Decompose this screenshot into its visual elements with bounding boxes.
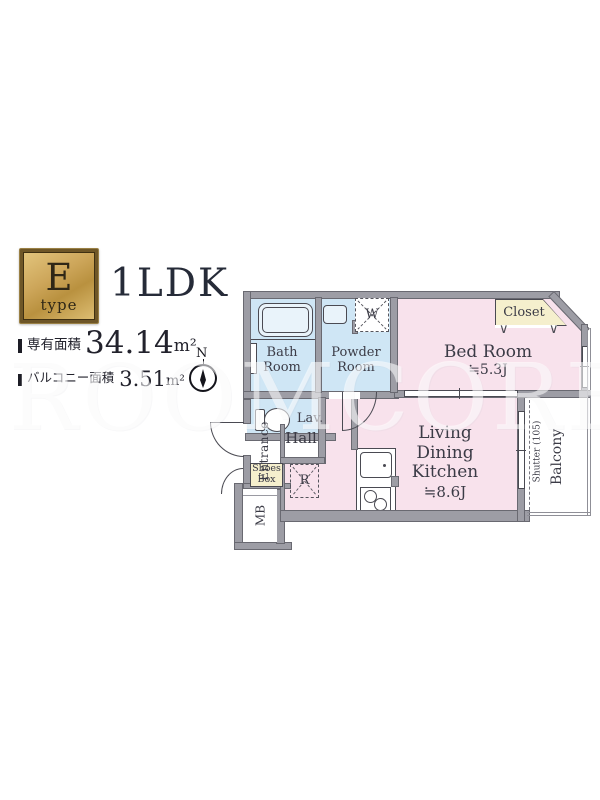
type-badge: E type <box>19 248 99 324</box>
bathtub-inner-line <box>262 307 309 333</box>
sink-icon <box>323 305 347 324</box>
bath-partition-line <box>251 339 315 340</box>
folding-door-mark-icon: ∨ <box>549 323 559 336</box>
balcony-area-row: バルコニー面積 3.51 m² <box>18 367 185 389</box>
entrance-door-arc <box>210 422 244 457</box>
kitchen-sink-icon <box>360 452 392 478</box>
window-tick <box>459 388 460 399</box>
tick-mark <box>18 374 22 386</box>
wall <box>280 457 325 464</box>
bedroom-size-label: ≒5.3J <box>394 362 582 378</box>
sink-drain-dot <box>383 464 386 467</box>
powder-room-label: Powder Room <box>319 346 393 376</box>
shoes-box-label: Shoes Box <box>250 464 283 486</box>
washer-label: W <box>355 307 389 322</box>
ldk-size-label: ≒8.6J <box>394 483 496 501</box>
floorplan-page: { "badge": {"letter": "E", "sub": "type"… <box>0 0 600 800</box>
exclusive-area-row: 専有面積 34.14 m² <box>18 328 197 356</box>
type-badge-panel: E type <box>23 252 95 320</box>
exclusive-area-unit: m² <box>174 338 197 356</box>
window-tick <box>516 450 526 451</box>
small-door-arc <box>221 468 243 494</box>
lavatory-label: Lav. <box>290 411 330 426</box>
tick-mark <box>18 339 22 353</box>
exclusive-area-label: 専有面積 <box>27 333 81 356</box>
bath-room-label: Bath Room <box>251 346 313 376</box>
compass-icon <box>189 364 217 392</box>
compass-north-label: N <box>196 346 207 361</box>
wall <box>243 291 560 299</box>
type-badge-letter: E <box>45 259 72 296</box>
balcony-edge-line <box>527 512 591 516</box>
shutter-label: Shutter (105) <box>533 417 544 487</box>
balcony-edge-line <box>587 328 591 516</box>
hall-label: Hall <box>282 429 320 447</box>
meter-box-label: MB <box>254 487 267 545</box>
folding-door-mark-icon: ∨ <box>499 323 509 336</box>
balcony-area-label: バルコニー面積 <box>27 367 114 389</box>
layout-type-title: 1LDK <box>110 264 229 303</box>
exclusive-area-value: 34.14 <box>85 330 174 356</box>
wall <box>280 510 530 522</box>
ldk-label: Living Dining Kitchen <box>410 424 480 483</box>
bedroom-label: Bed Room <box>394 342 582 362</box>
wall <box>315 297 322 393</box>
wall <box>243 291 251 399</box>
sliding-window <box>404 390 518 397</box>
stove-icon <box>360 487 391 512</box>
balcony-label: Balcony <box>549 417 565 497</box>
wall <box>243 399 251 424</box>
balcony-area-value: 3.51 <box>119 371 166 389</box>
compass-needle-icon <box>200 369 206 388</box>
refrigerator-label: R <box>290 473 319 488</box>
shutter-dashed-line <box>529 400 530 510</box>
type-badge-sub: type <box>41 298 78 313</box>
bathtub-icon <box>258 303 313 337</box>
balcony-area-unit: m² <box>166 374 185 389</box>
